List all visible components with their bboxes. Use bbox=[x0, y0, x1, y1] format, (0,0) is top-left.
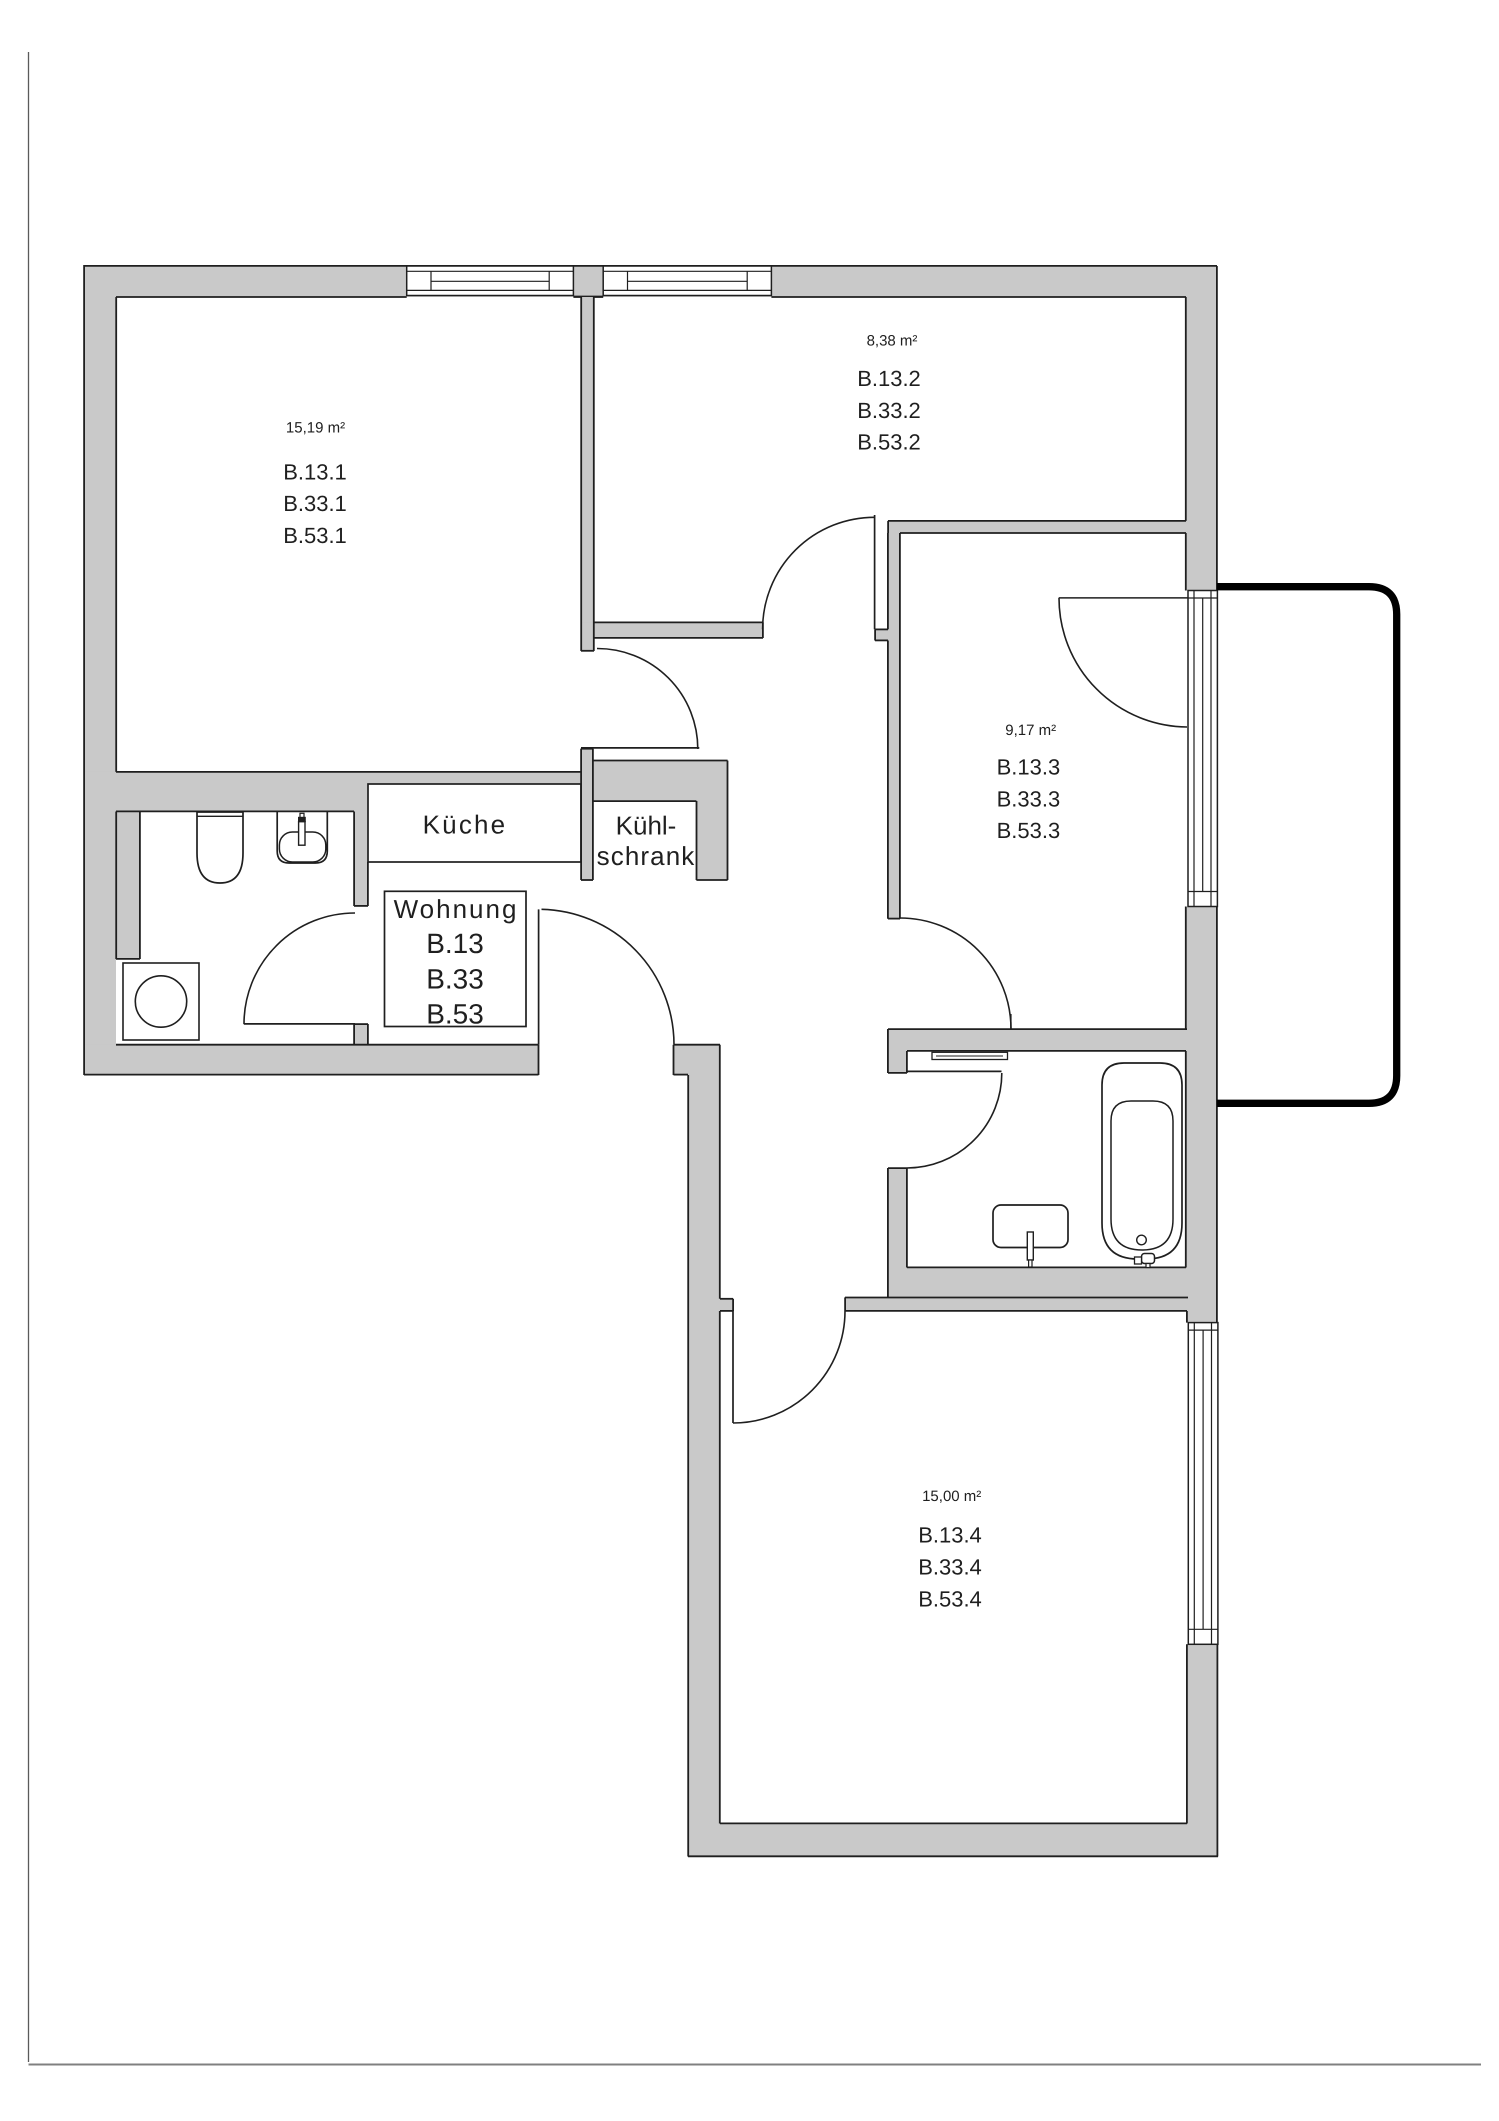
svg-text:B.53.1: B.53.1 bbox=[283, 523, 347, 548]
svg-text:B.53.2: B.53.2 bbox=[857, 429, 921, 454]
svg-text:15,00 m²: 15,00 m² bbox=[922, 1488, 981, 1505]
svg-text:9,17 m²: 9,17 m² bbox=[1005, 722, 1056, 739]
svg-text:B.53.4: B.53.4 bbox=[918, 1587, 982, 1612]
svg-text:8,38 m²: 8,38 m² bbox=[867, 333, 918, 350]
svg-text:B.33.1: B.33.1 bbox=[283, 491, 347, 516]
svg-text:Wohnung: Wohnung bbox=[394, 894, 519, 924]
svg-text:B.53.3: B.53.3 bbox=[997, 818, 1061, 843]
svg-text:B.13.4: B.13.4 bbox=[918, 1523, 982, 1548]
svg-text:B.33.3: B.33.3 bbox=[997, 786, 1061, 811]
svg-text:B.13: B.13 bbox=[426, 928, 484, 959]
svg-text:schrank: schrank bbox=[597, 841, 696, 871]
svg-text:15,19 m²: 15,19 m² bbox=[286, 419, 345, 436]
svg-text:B.13.1: B.13.1 bbox=[283, 459, 347, 484]
svg-text:B.33.2: B.33.2 bbox=[857, 398, 921, 423]
svg-text:Küche: Küche bbox=[423, 810, 508, 840]
svg-text:B.53: B.53 bbox=[426, 999, 484, 1030]
svg-text:Kühl-: Kühl- bbox=[616, 810, 677, 840]
svg-text:B.33.4: B.33.4 bbox=[918, 1554, 982, 1579]
svg-text:B.13.2: B.13.2 bbox=[857, 366, 921, 391]
svg-text:B.33: B.33 bbox=[426, 963, 484, 994]
svg-text:B.13.3: B.13.3 bbox=[997, 755, 1061, 780]
